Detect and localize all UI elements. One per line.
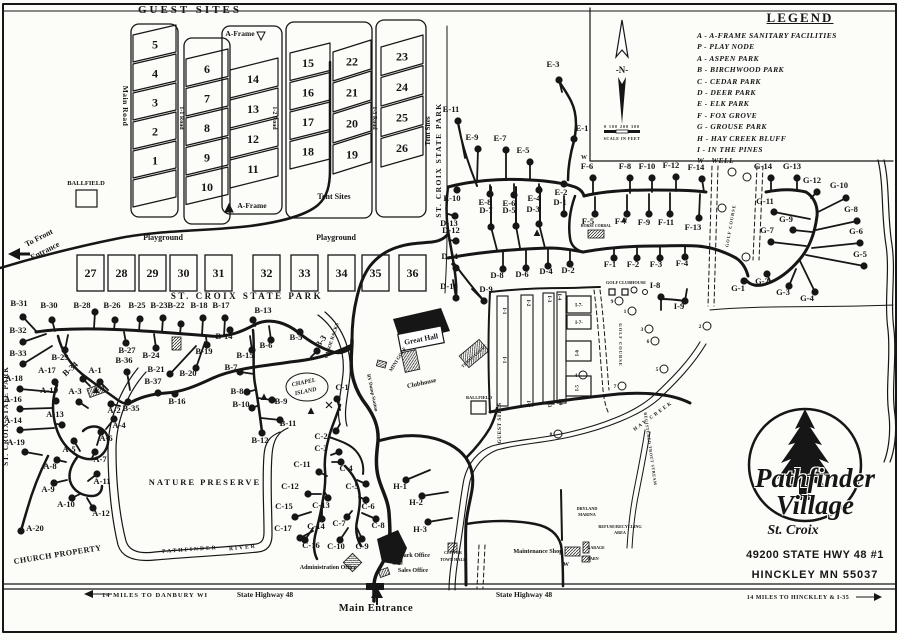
- site-label: B-15: [236, 350, 253, 360]
- building-icon: [377, 530, 407, 565]
- road: [345, 466, 361, 546]
- site-dot: [236, 368, 243, 375]
- bridge-icon: [326, 402, 332, 408]
- site-dot: [793, 174, 800, 181]
- site-label: B-30: [40, 300, 57, 310]
- site-label: C-1: [335, 382, 348, 392]
- map-label: ST. CROIX STATE PARK: [434, 102, 443, 217]
- site-label: B-35: [122, 403, 139, 413]
- site-number: 4: [152, 67, 158, 81]
- site-label: B-6: [260, 340, 274, 350]
- site-stem: [23, 346, 52, 364]
- site-label: A-6: [99, 433, 113, 443]
- site-dot: [560, 210, 567, 217]
- site-stem: [458, 121, 465, 158]
- a-frame-triangle-icon: [225, 204, 233, 212]
- site-dot: [853, 217, 860, 224]
- water-line: [108, 368, 288, 560]
- site-dot: [243, 388, 250, 395]
- site-dot: [767, 238, 774, 245]
- map-label: GUEST SITES: [138, 4, 242, 16]
- golf-hole-number: 9: [611, 299, 614, 305]
- site-dot: [166, 370, 173, 377]
- site-dot: [770, 208, 777, 215]
- site-label: F-7: [615, 216, 628, 226]
- site-dot: [648, 174, 655, 181]
- site-number: 33: [299, 266, 311, 280]
- scale-ticks: 0 100 200 300: [604, 124, 640, 129]
- site-label: C-10: [327, 541, 345, 551]
- site-label: E-6: [503, 198, 517, 208]
- site-label: H-1: [393, 481, 407, 491]
- arrow-head-icon: [8, 248, 20, 260]
- site-number: 17: [302, 115, 314, 129]
- building-icon: [565, 547, 580, 556]
- golf-hole-number: 4: [575, 373, 578, 379]
- site-dot: [17, 527, 24, 534]
- site-label: C-2: [314, 431, 327, 441]
- water-line: [632, 432, 650, 548]
- site-number: 21: [346, 86, 358, 100]
- site-number: I-5: [576, 384, 581, 391]
- map-label: I-3: [546, 296, 552, 303]
- map-label: I-3: [546, 401, 552, 408]
- site-stem: [422, 492, 448, 496]
- site-label: E-5: [517, 145, 530, 155]
- site-number: 18: [302, 144, 314, 158]
- map-label: PATHFINDER: [162, 545, 218, 555]
- site-dot: [452, 294, 459, 301]
- map-label: CHURCH PROPERTY: [13, 543, 102, 566]
- map-label: Playground: [143, 233, 183, 242]
- map-label: DRYLAND: [577, 506, 598, 511]
- a-frame-triangle-icon: [257, 32, 265, 40]
- site-dot: [789, 226, 796, 233]
- site-label: F-4: [676, 258, 689, 268]
- map-label: HORSE CORRAL: [581, 224, 612, 228]
- map-label: TOWN HALL: [440, 557, 466, 562]
- site-dot: [199, 314, 206, 321]
- dashed-road: [759, 166, 763, 260]
- map-label: Clubhouse: [406, 377, 437, 390]
- site-dot: [695, 214, 702, 221]
- site-label: A-17: [38, 365, 56, 375]
- field-icon: [622, 289, 628, 295]
- legend-entry: C - CEDAR PARK: [697, 76, 897, 87]
- site-dot: [626, 174, 633, 181]
- map-label: Sales Office: [398, 568, 428, 574]
- legend-entry: H - HAY CREEK BLUFF: [697, 133, 897, 144]
- site-label: C-9: [355, 541, 368, 551]
- map-label: HAY CREEK: [633, 401, 674, 433]
- site-label: C-15: [275, 501, 293, 511]
- golf-green-icon: [742, 253, 750, 261]
- site-label: B-23: [150, 300, 167, 310]
- site-number: 25: [396, 110, 408, 124]
- legend-entry: A - ASPEN PARK: [697, 53, 897, 64]
- map-label: A-Frame: [225, 29, 255, 38]
- map-label: 14 MILES TO DANBURY WI: [102, 592, 208, 599]
- map-label: GOLF CLUBHOUSE: [606, 280, 646, 285]
- site-dot: [335, 448, 342, 455]
- site-number: 24: [396, 80, 408, 94]
- map-label: Tent Sites: [317, 192, 350, 201]
- site-dot: [221, 314, 228, 321]
- map-label: BARN: [587, 556, 598, 561]
- site-label: B-10: [232, 399, 249, 409]
- site-number: 30: [178, 266, 190, 280]
- map-label: Playground: [316, 233, 356, 242]
- site-label: G-7: [760, 225, 775, 235]
- map-label: CLOVER: [444, 550, 463, 555]
- site-number: I-6: [576, 349, 581, 356]
- site-label: F-10: [639, 161, 656, 171]
- site-number: 22: [346, 55, 358, 69]
- site-label: B-20: [179, 368, 196, 378]
- site-dot: [332, 427, 339, 434]
- site-dot: [535, 220, 542, 227]
- site-label: A-8: [43, 461, 57, 471]
- site-dot: [657, 293, 664, 300]
- map-label: ISLAND: [293, 387, 317, 398]
- site-label: D-13: [440, 218, 458, 228]
- site-label: E-9: [466, 132, 479, 142]
- legend-entry: W - WELL: [697, 155, 897, 166]
- building-icon: [172, 337, 181, 350]
- golf-hole-icon: [703, 322, 711, 330]
- site-number: 5: [152, 38, 158, 52]
- map-label: GARAGE: [587, 545, 605, 550]
- site-dot: [767, 174, 774, 181]
- site-label: A-12: [92, 508, 110, 518]
- site-label: A-10: [57, 499, 75, 509]
- golf-green-icon: [643, 290, 648, 295]
- site-label: C-3: [314, 443, 327, 453]
- map-label: 1-2 Road: [271, 106, 277, 130]
- site-number: 31: [213, 266, 225, 280]
- field-icon: [471, 401, 486, 414]
- site-number: 11: [247, 162, 258, 176]
- site-dot: [296, 534, 303, 541]
- golf-hole-number: 8: [550, 432, 553, 438]
- legend-entry: E - ELK PARK: [697, 98, 897, 109]
- legend: LEGEND A - A-FRAME SANITARY FACILITIESP …: [697, 10, 897, 167]
- golf-hole-number: 5: [656, 367, 659, 373]
- compass-n-label: -N-: [616, 65, 629, 75]
- golf-hole-icon: [628, 307, 636, 315]
- site-label: C-7: [332, 518, 346, 528]
- site-label: A-1: [88, 365, 101, 375]
- road: [466, 408, 497, 458]
- site-label: F-1: [604, 259, 616, 269]
- site-dot: [96, 378, 103, 385]
- field-icon: [609, 289, 615, 295]
- site-label: B-36: [115, 355, 133, 365]
- boundary-line: [710, 305, 893, 310]
- map-label: ST. CROIX STATE PARK: [2, 366, 10, 466]
- site-dot: [512, 222, 519, 229]
- site-dot: [48, 316, 55, 323]
- road: [490, 287, 600, 292]
- golf-hole-icon: [651, 337, 659, 345]
- legend-entry: A - A-FRAME SANITARY FACILITIES: [697, 30, 897, 41]
- site-label: B-28: [73, 300, 91, 310]
- legend-title: LEGEND: [725, 10, 875, 26]
- dashed-road: [483, 545, 485, 588]
- site-label: D-2: [561, 265, 574, 275]
- site-label: B-31: [10, 298, 27, 308]
- site-number: 7: [204, 91, 210, 105]
- map-label: W: [563, 562, 569, 568]
- site-dot: [16, 385, 23, 392]
- road: [489, 292, 491, 412]
- map-label: BALLFIELD: [67, 180, 105, 187]
- map-label: I-2: [525, 401, 531, 408]
- golf-green-icon: [743, 173, 751, 181]
- site-dot: [474, 145, 481, 152]
- site-number: 13: [247, 102, 259, 116]
- map-label: Administration Office: [300, 565, 357, 571]
- map-label: I-1: [501, 308, 507, 315]
- legend-entry: P - PLAY NODE: [697, 41, 897, 52]
- site-number: 16: [302, 85, 314, 99]
- building-icon: [366, 583, 384, 590]
- golf-hole-number: 1: [624, 309, 627, 315]
- site-dot: [249, 316, 256, 323]
- a-frame-triangle-icon: [535, 231, 540, 236]
- site-label: C-6: [361, 501, 375, 511]
- map-label: REGISTERED TROUT STREAM: [643, 412, 658, 486]
- site-number: 8: [204, 121, 210, 135]
- road: [561, 490, 562, 540]
- site-dot: [555, 76, 562, 83]
- camp-strip: [557, 292, 566, 403]
- site-dot: [52, 397, 59, 404]
- site-label: E-1: [576, 123, 589, 133]
- site-dot: [177, 320, 184, 327]
- map-label: A-Frame: [237, 201, 267, 210]
- golf-green-icon: [718, 204, 726, 212]
- site-label: E-7: [494, 133, 508, 143]
- arrow-head-icon: [84, 590, 93, 598]
- site-dot: [452, 237, 459, 244]
- golf-hole-number: 3: [641, 327, 644, 333]
- compass-south-arrow-icon: [618, 77, 626, 124]
- site-number: 15: [302, 56, 314, 70]
- site-label: F-3: [650, 259, 662, 269]
- site-dot: [111, 316, 118, 323]
- site-label: E-2: [555, 187, 568, 197]
- site-dot: [58, 421, 65, 428]
- golf-hole-number: 6: [647, 339, 650, 345]
- dashed-road: [477, 545, 479, 588]
- site-label: E-4: [528, 193, 542, 203]
- site-label: B-7: [225, 362, 239, 372]
- site-label: B-8: [231, 386, 245, 396]
- golf-hole-icon: [660, 365, 668, 373]
- map-label: I-2: [525, 300, 531, 307]
- map-label: I-4: [557, 399, 563, 406]
- site-label: G-10: [830, 180, 848, 190]
- site-label: G-4: [800, 293, 815, 303]
- site-label: I-8: [650, 280, 661, 290]
- site-label: A-20: [26, 523, 44, 533]
- water-line: [627, 430, 645, 548]
- site-label: A-15: [40, 385, 58, 395]
- site-number: 28: [116, 266, 128, 280]
- site-label: B-26: [103, 300, 121, 310]
- field-icon: [76, 190, 97, 207]
- site-stem: [477, 149, 478, 182]
- campground-map: 5432167891014131211151617182221201923242…: [0, 0, 899, 640]
- golf-hole-number: 7: [614, 384, 617, 390]
- site-number: 35: [370, 266, 382, 280]
- logo-address-line2: HINCKLEY MN 55037: [733, 569, 897, 581]
- site-label: B-33: [9, 348, 26, 358]
- site-number: 19: [346, 148, 358, 162]
- legend-entry: D - DEER PARK: [697, 87, 897, 98]
- site-number: 29: [147, 266, 159, 280]
- site-label: B-24: [142, 350, 160, 360]
- site-dot: [856, 239, 863, 246]
- site-label: C-11: [293, 459, 310, 469]
- site-stem: [800, 261, 815, 292]
- site-label: F-11: [658, 217, 674, 227]
- site-label: G-11: [756, 196, 774, 206]
- site-dot: [16, 426, 23, 433]
- site-label: G-2: [755, 276, 769, 286]
- site-dot: [698, 175, 705, 182]
- site-label: D-1: [553, 197, 566, 207]
- site-label: B-25: [128, 300, 145, 310]
- site-label: B-9: [275, 396, 288, 406]
- site-label: F-8: [619, 161, 632, 171]
- site-label: G-1: [731, 283, 745, 293]
- map-label: 1-1 Road: [178, 106, 184, 130]
- map-label: Main Entrance: [339, 603, 413, 614]
- logo-subtitle: St. Croix: [733, 523, 853, 539]
- golf-hole-icon: [615, 297, 623, 305]
- dashed-road: [753, 166, 757, 260]
- map-label: I-4: [556, 294, 562, 301]
- site-label: C-13: [312, 500, 330, 510]
- legend-entry: G - GROUSE PARK: [697, 121, 897, 132]
- site-stem: [428, 518, 452, 522]
- map-label: Tent Sites: [424, 116, 432, 145]
- site-dot: [159, 314, 166, 321]
- site-stem: [20, 428, 54, 430]
- golf-green-icon: [631, 287, 637, 293]
- site-dot: [123, 368, 130, 375]
- compass-north-arrow-icon: [616, 20, 628, 57]
- dashed-road: [714, 166, 718, 306]
- site-dot: [526, 158, 533, 165]
- site-label: C-17: [274, 523, 292, 533]
- legend-entry: I - IN THE PINES: [697, 144, 897, 155]
- site-number: I-7-: [575, 321, 583, 326]
- site-label: E-8: [479, 197, 493, 207]
- map-label: State Highway 48: [496, 590, 553, 599]
- site-label: D-10: [440, 281, 458, 291]
- site-label: A-4: [112, 420, 126, 430]
- map-label: MARINA: [578, 512, 596, 517]
- site-label: B-13: [254, 305, 271, 315]
- site-label: G-8: [844, 204, 859, 214]
- site-label: A-3: [68, 386, 81, 396]
- site-stem: [20, 408, 52, 409]
- site-dot: [75, 398, 82, 405]
- site-dot: [136, 315, 143, 322]
- site-number: 10: [201, 180, 213, 194]
- site-stem: [406, 470, 430, 480]
- site-stem: [818, 198, 846, 212]
- scale-bar: [604, 130, 616, 133]
- site-dot: [842, 194, 849, 201]
- site-dot: [454, 117, 461, 124]
- site-number: 2: [152, 125, 158, 139]
- site-number: 34: [336, 266, 348, 280]
- site-label: B-18: [190, 300, 208, 310]
- site-label: A-7: [93, 454, 107, 464]
- site-dot: [51, 378, 58, 385]
- site-number: 1: [152, 154, 158, 168]
- site-label: G-12: [803, 175, 821, 185]
- site-number: I-7-: [575, 304, 583, 309]
- site-label: B-21: [147, 364, 164, 374]
- golf-hole-icon: [618, 382, 626, 390]
- site-number: 32: [261, 266, 273, 280]
- site-label: D-9: [479, 284, 492, 294]
- site-dot: [315, 468, 322, 475]
- building-icon: [588, 230, 604, 238]
- map-label: Main Road: [121, 86, 130, 127]
- site-dot: [21, 448, 28, 455]
- site-label: I-9: [674, 301, 685, 311]
- site-label: G-3: [776, 287, 790, 297]
- map-label: GOLF COURSE: [618, 323, 623, 366]
- site-label: B-12: [251, 435, 268, 445]
- map-label: State Highway 48: [237, 590, 294, 599]
- site-number: 3: [152, 96, 158, 110]
- site-label: F-13: [685, 222, 702, 232]
- site-dot: [480, 297, 487, 304]
- road: [584, 190, 706, 196]
- site-dot: [452, 264, 459, 271]
- site-label: B-37: [144, 376, 162, 386]
- site-number: 36: [407, 266, 419, 280]
- site-label: B-32: [9, 325, 26, 335]
- site-number: 6: [204, 62, 210, 76]
- map-label: Maintenance Shop: [513, 548, 563, 555]
- site-label: C-12: [281, 481, 299, 491]
- logo-name-line2: Village: [733, 490, 897, 521]
- site-dot: [333, 395, 340, 402]
- site-number: 27: [85, 266, 97, 280]
- site-dot: [154, 389, 161, 396]
- golf-hole-icon: [645, 325, 653, 333]
- site-dot: [79, 375, 86, 382]
- site-label: A-9: [41, 484, 54, 494]
- site-number: 26: [396, 141, 408, 155]
- site-stem: [812, 243, 860, 248]
- road: [448, 248, 583, 258]
- site-number: 9: [204, 150, 210, 164]
- site-dot: [19, 338, 26, 345]
- map-label: 1-3 Road: [371, 106, 377, 130]
- golf-hole-icon: [579, 371, 587, 379]
- site-label: G-5: [853, 249, 867, 259]
- site-dot: [487, 223, 494, 230]
